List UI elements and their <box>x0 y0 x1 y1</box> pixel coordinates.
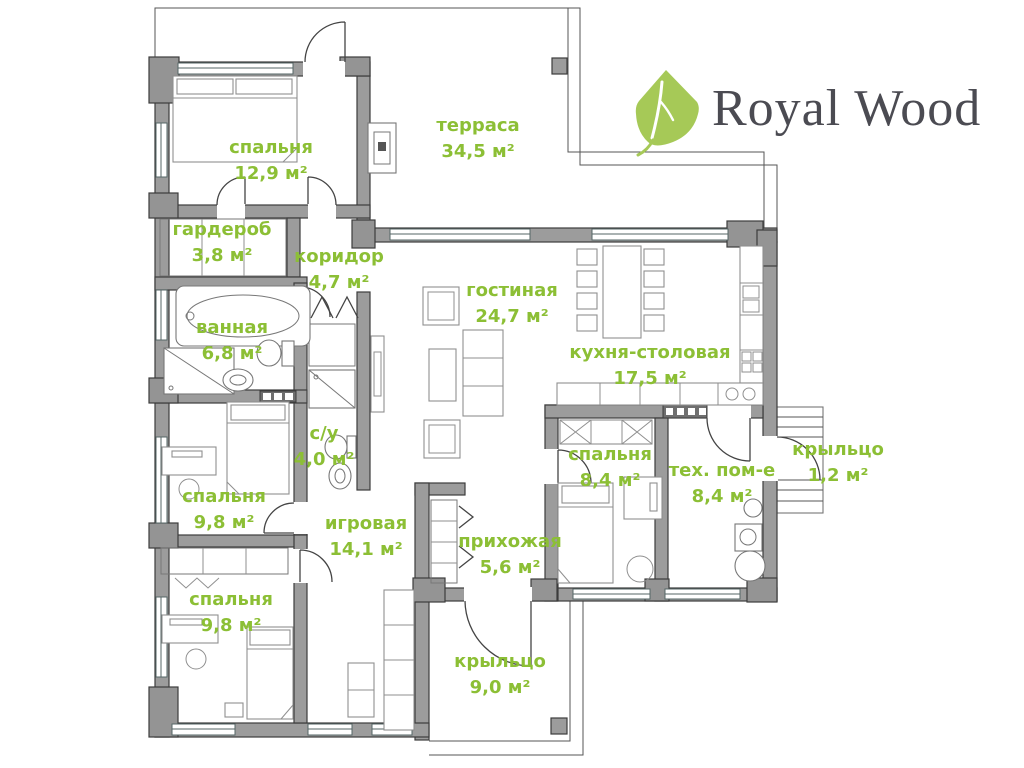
room-area: 4,7 м² <box>294 270 384 296</box>
room-area: 9,8 м² <box>182 510 266 536</box>
room-name: прихожая <box>458 529 562 555</box>
sink-bathroom <box>223 369 253 391</box>
room-label-porch-main: крыльцо 9,0 м² <box>454 649 546 701</box>
room-name: спальня <box>568 442 652 468</box>
closet-bedroom-4 <box>161 548 288 588</box>
room-area: 1,2 м² <box>792 463 884 489</box>
room-label-playroom: игровая 14,1 м² <box>325 511 407 563</box>
room-area: 12,9 м² <box>229 161 313 187</box>
leaf-icon <box>628 58 700 158</box>
room-label-wc: с/у 4,0 м² <box>294 421 355 473</box>
room-label-bedroom-1: спальня 12,9 м² <box>229 135 313 187</box>
shower-wc <box>309 370 355 408</box>
room-area: 24,7 м² <box>466 304 558 330</box>
closet-wc <box>309 324 355 366</box>
room-label-terrace: терраса 34,5 м² <box>436 113 519 165</box>
room-area: 6,8 м² <box>196 341 268 367</box>
room-label-living-room: гостиная 24,7 м² <box>466 278 558 330</box>
room-name: крыльцо <box>792 437 884 463</box>
room-name: гостиная <box>466 278 558 304</box>
room-area: 9,0 м² <box>454 675 546 701</box>
bed-bedroom-2 <box>227 402 289 494</box>
room-name: кухня-столовая <box>569 340 730 366</box>
closet-bedroom-3 <box>560 420 652 444</box>
room-area: 34,5 м² <box>436 139 519 165</box>
brand-logo: Royal Wood <box>628 58 981 158</box>
room-area: 14,1 м² <box>325 537 407 563</box>
room-label-kitchen: кухня-столовая 17,5 м² <box>569 340 730 392</box>
room-label-tech-room: тех. пом-е 8,4 м² <box>669 458 776 510</box>
bed-bedroom-4 <box>225 627 293 719</box>
room-label-bedroom-4: спальня 9,8 м² <box>189 587 273 639</box>
room-area: 3,8 м² <box>173 243 272 269</box>
room-name: коридор <box>294 244 384 270</box>
room-name: крыльцо <box>454 649 546 675</box>
room-label-bathroom: ванная 6,8 м² <box>196 315 268 367</box>
tech-room-equipment <box>735 499 765 581</box>
room-name: спальня <box>189 587 273 613</box>
room-label-wardrobe: гардероб 3,8 м² <box>173 217 272 269</box>
bed-bedroom-3 <box>558 483 613 583</box>
room-name: ванная <box>196 315 268 341</box>
room-area: 9,8 м² <box>189 613 273 639</box>
room-name: спальня <box>229 135 313 161</box>
room-area: 17,5 м² <box>569 366 730 392</box>
room-label-corridor: коридор 4,7 м² <box>294 244 384 296</box>
room-area: 8,4 м² <box>669 484 776 510</box>
room-name: игровая <box>325 511 407 537</box>
room-label-bedroom-3: спальня 8,4 м² <box>568 442 652 494</box>
brand-name: Royal Wood <box>712 79 981 138</box>
room-area: 4,0 м² <box>294 447 355 473</box>
room-label-bedroom-2: спальня 9,8 м² <box>182 484 266 536</box>
room-name: с/у <box>294 421 355 447</box>
room-label-porch-side: крыльцо 1,2 м² <box>792 437 884 489</box>
room-label-hallway: прихожая 5,6 м² <box>458 529 562 581</box>
terrace-fireplace <box>368 123 396 173</box>
room-name: гардероб <box>173 217 272 243</box>
room-area: 5,6 м² <box>458 555 562 581</box>
playroom-furniture <box>348 590 414 730</box>
room-name: тех. пом-е <box>669 458 776 484</box>
room-area: 8,4 м² <box>568 468 652 494</box>
room-name: терраса <box>436 113 519 139</box>
dining-table <box>577 246 664 338</box>
room-name: спальня <box>182 484 266 510</box>
floor-plan-page: спальня 12,9 м² терраса 34,5 м² гардероб… <box>0 0 1024 768</box>
closet-hallway <box>431 500 457 583</box>
